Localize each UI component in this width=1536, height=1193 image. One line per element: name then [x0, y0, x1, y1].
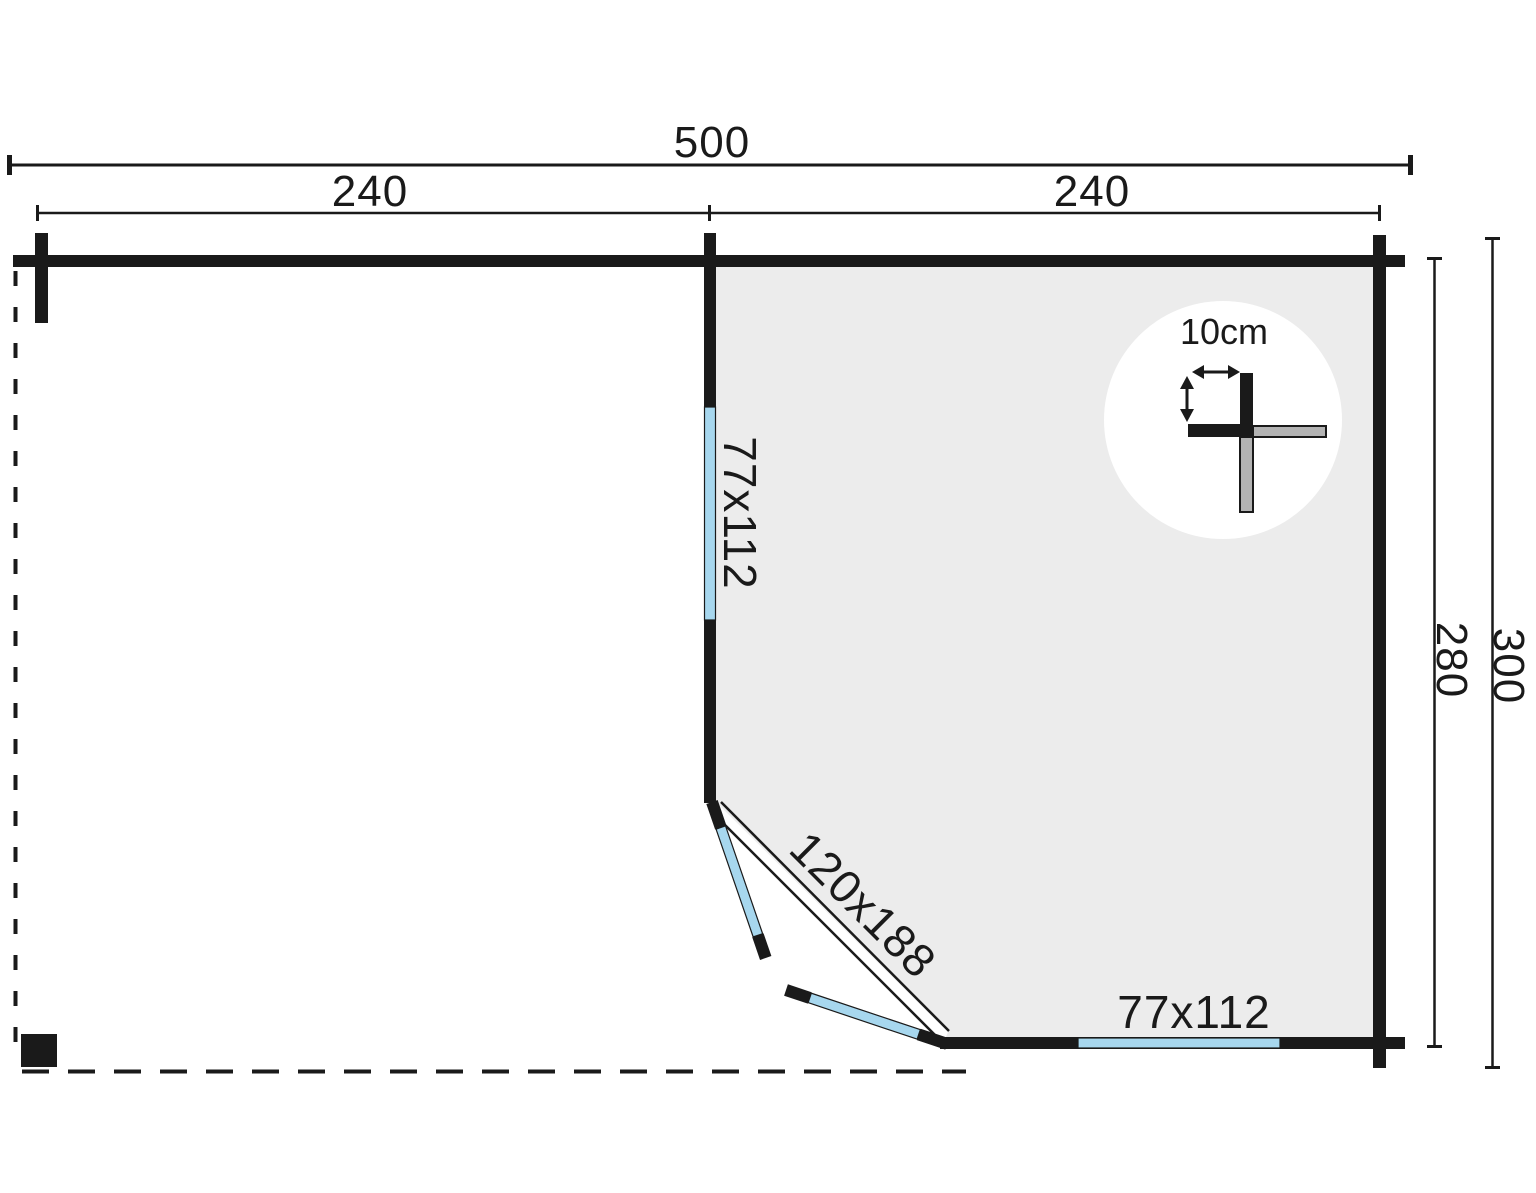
- door-leaf-right-panel: [808, 993, 920, 1039]
- dimension-inner-depth: 280: [1427, 258, 1476, 1047]
- front-window-glass: [1078, 1038, 1280, 1048]
- floor-plan-drawing: 500 240 240 280 300: [0, 0, 1536, 1193]
- dim-280-label: 280: [1427, 622, 1476, 698]
- side-window-glass: [705, 407, 716, 620]
- callout-log-horizontal-black: [1188, 424, 1253, 437]
- side-window: 77x112: [705, 407, 767, 620]
- callout-log-vertical-gray: [1240, 437, 1253, 512]
- dim-500-label: 500: [674, 118, 750, 167]
- door-leaf-left-panel: [716, 826, 763, 937]
- dimension-total-width: 500: [9, 118, 1411, 175]
- callout-log-horizontal-gray: [1253, 426, 1326, 437]
- side-window-label: 77x112: [714, 436, 766, 590]
- dimension-left-width: 240: [37, 167, 710, 221]
- dim-240r-label: 240: [1054, 167, 1130, 216]
- dimension-total-depth: 300: [1484, 238, 1533, 1068]
- door-leaf-left-end-cap: [752, 933, 771, 960]
- canopy-corner-post: [21, 1034, 57, 1067]
- floor-plan-canvas: 500 240 240 280 300: [0, 0, 1536, 1193]
- dimension-right-width: 240: [709, 167, 1380, 221]
- front-left-post: [35, 233, 48, 323]
- front-window-label: 77x112: [1117, 986, 1271, 1038]
- wall-thickness-callout: 10cm: [1104, 301, 1342, 539]
- right-wall: [1373, 235, 1386, 1068]
- door-leaf-right-hinge-cap: [784, 984, 812, 1003]
- dim-240l-label: 240: [332, 167, 408, 216]
- dim-300-label: 300: [1484, 628, 1533, 704]
- wall-thickness-label: 10cm: [1180, 311, 1268, 352]
